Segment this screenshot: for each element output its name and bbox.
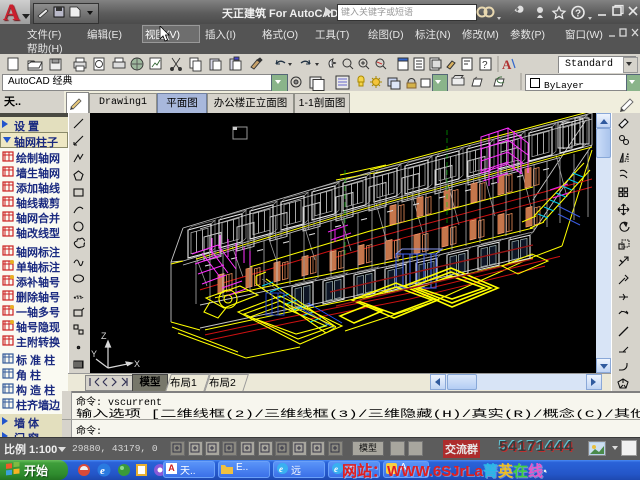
svg-text:Y: Y xyxy=(91,349,97,359)
svg-text:e: e xyxy=(279,464,283,474)
svg-text:?: ? xyxy=(482,60,488,71)
svg-text:A: A xyxy=(502,57,512,72)
svg-text:e: e xyxy=(334,464,338,474)
svg-text:X: X xyxy=(134,359,140,369)
svg-text:?: ? xyxy=(575,9,581,20)
svg-text:Z: Z xyxy=(101,331,107,341)
svg-text:e: e xyxy=(100,465,105,477)
